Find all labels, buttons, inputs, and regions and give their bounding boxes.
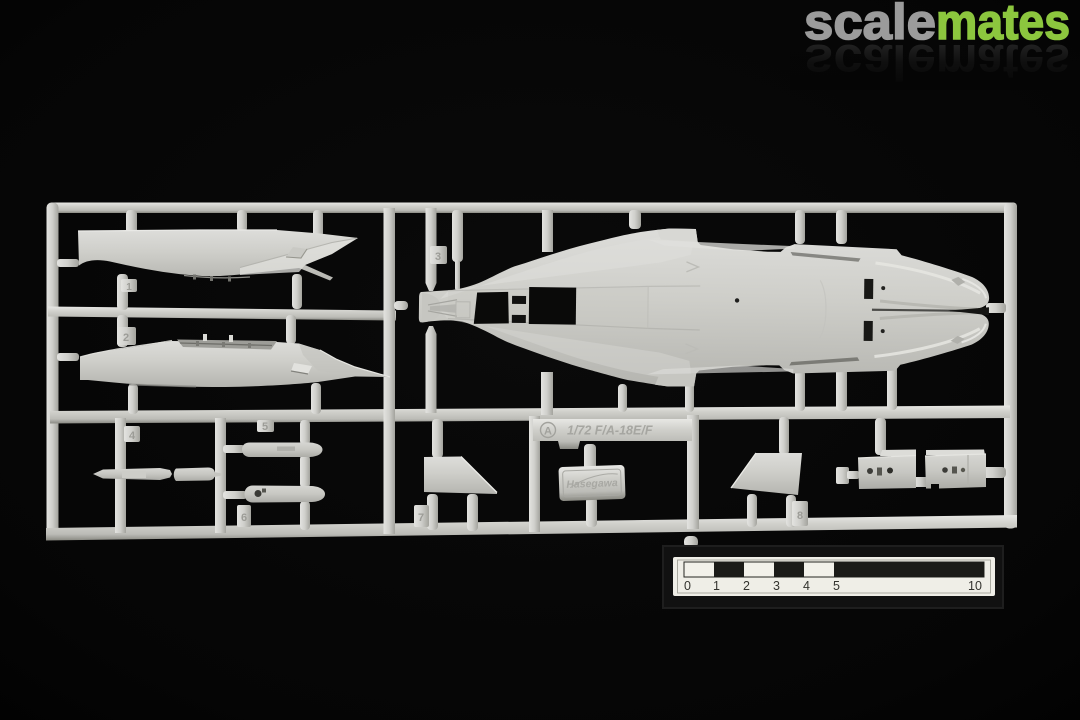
- svg-text:A: A: [544, 426, 552, 438]
- svg-text:6: 6: [241, 512, 247, 524]
- svg-text:2: 2: [123, 332, 129, 344]
- svg-text:4: 4: [803, 579, 810, 593]
- svg-text:1/72 F/A-18E/F: 1/72 F/A-18E/F: [567, 424, 653, 438]
- svg-text:mates: mates: [936, 0, 1070, 50]
- svg-text:5: 5: [833, 579, 840, 593]
- svg-text:0: 0: [684, 579, 691, 593]
- svg-text:7: 7: [418, 512, 424, 524]
- svg-text:1: 1: [713, 579, 720, 593]
- svg-text:3: 3: [435, 251, 441, 263]
- svg-text:1: 1: [126, 282, 132, 293]
- svg-text:5: 5: [262, 421, 268, 433]
- svg-text:scale: scale: [804, 0, 936, 50]
- svg-text:4: 4: [129, 430, 136, 442]
- svg-text:Hasegawa: Hasegawa: [566, 477, 618, 491]
- svg-text:3: 3: [773, 579, 780, 593]
- svg-text:10: 10: [968, 579, 982, 593]
- svg-text:8: 8: [797, 510, 803, 522]
- svg-text:2: 2: [743, 579, 750, 593]
